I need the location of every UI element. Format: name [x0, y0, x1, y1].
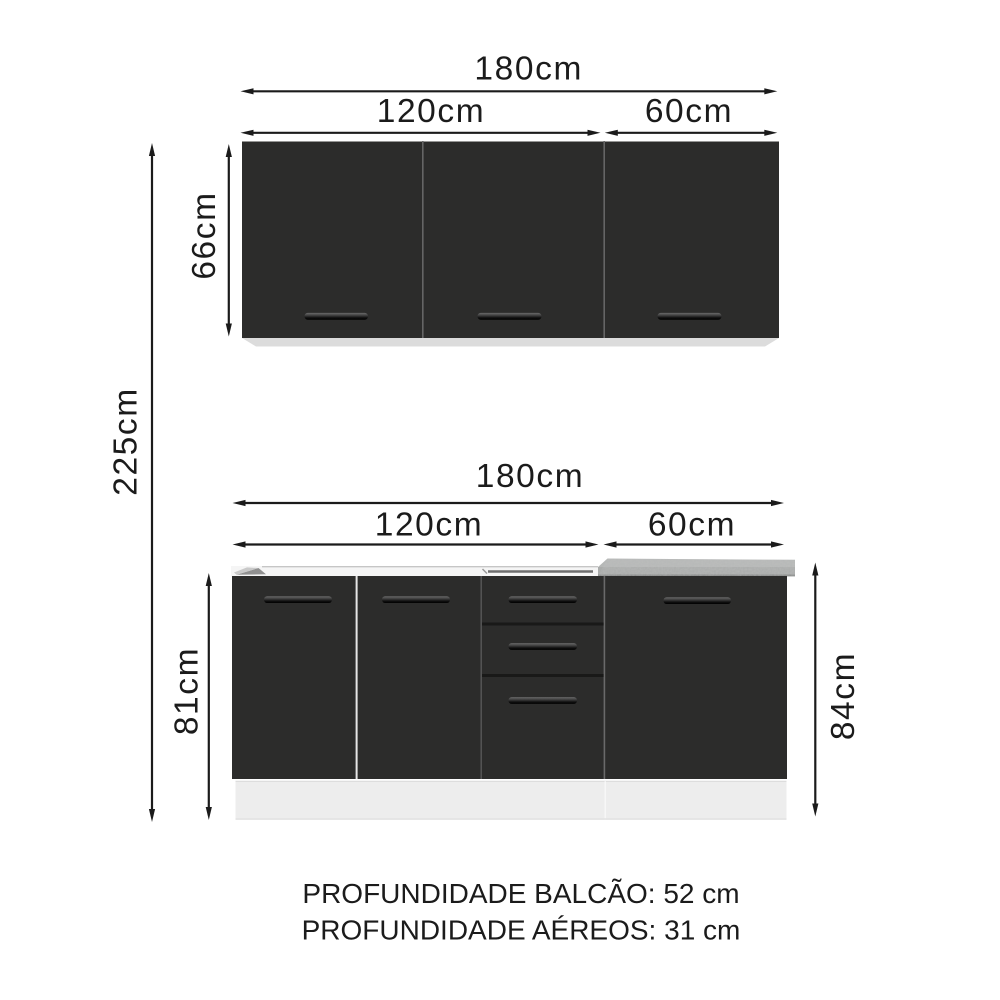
svg-text:PROFUNDIDADE BALCÃO: 52 cm: PROFUNDIDADE BALCÃO: 52 cm: [302, 878, 739, 909]
svg-text:60cm: 60cm: [648, 507, 736, 544]
svg-text:180cm: 180cm: [474, 51, 583, 88]
svg-text:120cm: 120cm: [377, 93, 486, 130]
svg-text:PROFUNDIDADE AÉREOS: 31 cm: PROFUNDIDADE AÉREOS: 31 cm: [302, 915, 741, 946]
svg-text:180cm: 180cm: [476, 458, 585, 495]
svg-text:81cm: 81cm: [169, 647, 206, 735]
svg-text:60cm: 60cm: [645, 93, 733, 130]
svg-text:120cm: 120cm: [375, 507, 484, 544]
svg-text:84cm: 84cm: [825, 652, 862, 740]
svg-text:225cm: 225cm: [107, 387, 144, 496]
svg-text:66cm: 66cm: [186, 191, 223, 279]
